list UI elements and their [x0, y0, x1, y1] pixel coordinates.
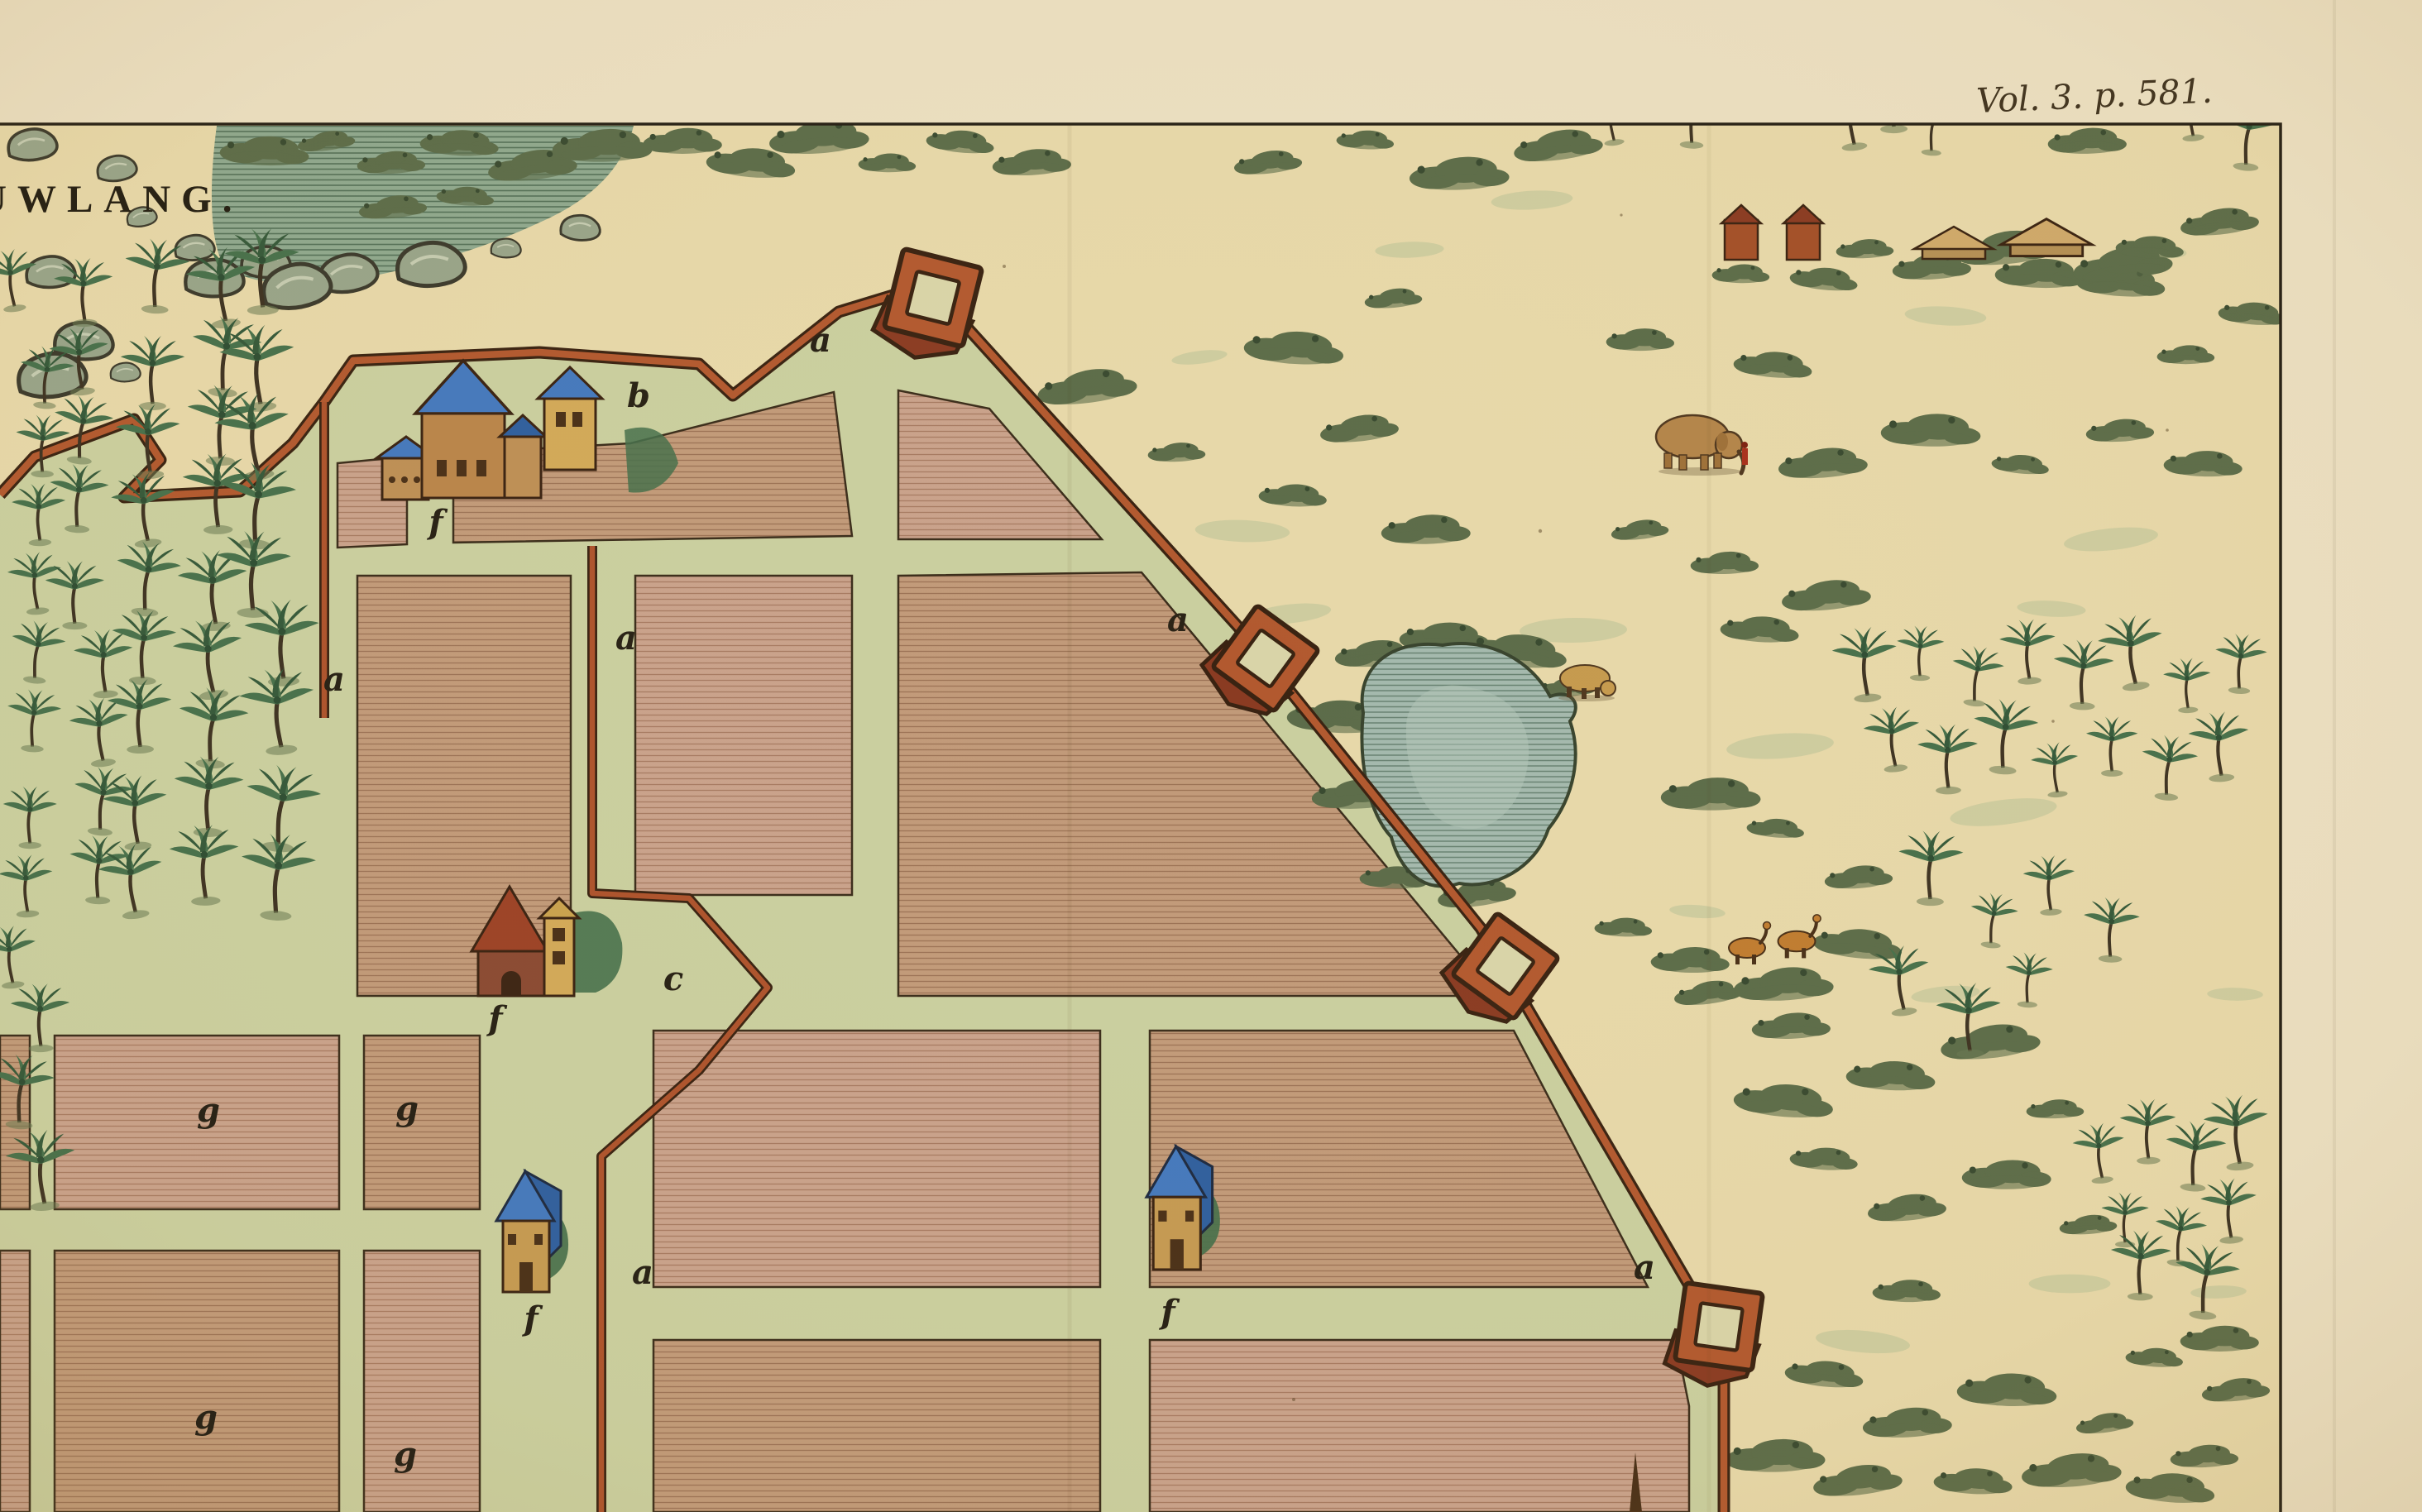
map-letter-label: a	[1167, 600, 1189, 639]
map-letter-label: a	[1634, 1248, 1655, 1287]
map-letter-label: g	[194, 1398, 218, 1437]
map-letter-label: g	[395, 1089, 419, 1128]
antique-map-sheet: UWLANG. Vol. 3. p. 581. abfaaacfggfafagg	[0, 0, 2422, 1512]
map-letter-label: a	[810, 321, 831, 360]
map-letter-label: a	[632, 1253, 653, 1292]
map-letter-label: c	[663, 959, 683, 998]
map-letter-label: a	[323, 660, 345, 699]
map-title-fragment: UWLANG.	[0, 178, 242, 221]
map-letter-label: g	[394, 1435, 417, 1474]
map-canvas: UWLANG. Vol. 3. p. 581. abfaaacfggfafagg	[0, 0, 2422, 1512]
map-letter-label: g	[197, 1091, 220, 1130]
map-letter-label: a	[615, 619, 637, 658]
map-letter-label: b	[627, 376, 650, 415]
age-vignette	[0, 0, 2422, 1512]
